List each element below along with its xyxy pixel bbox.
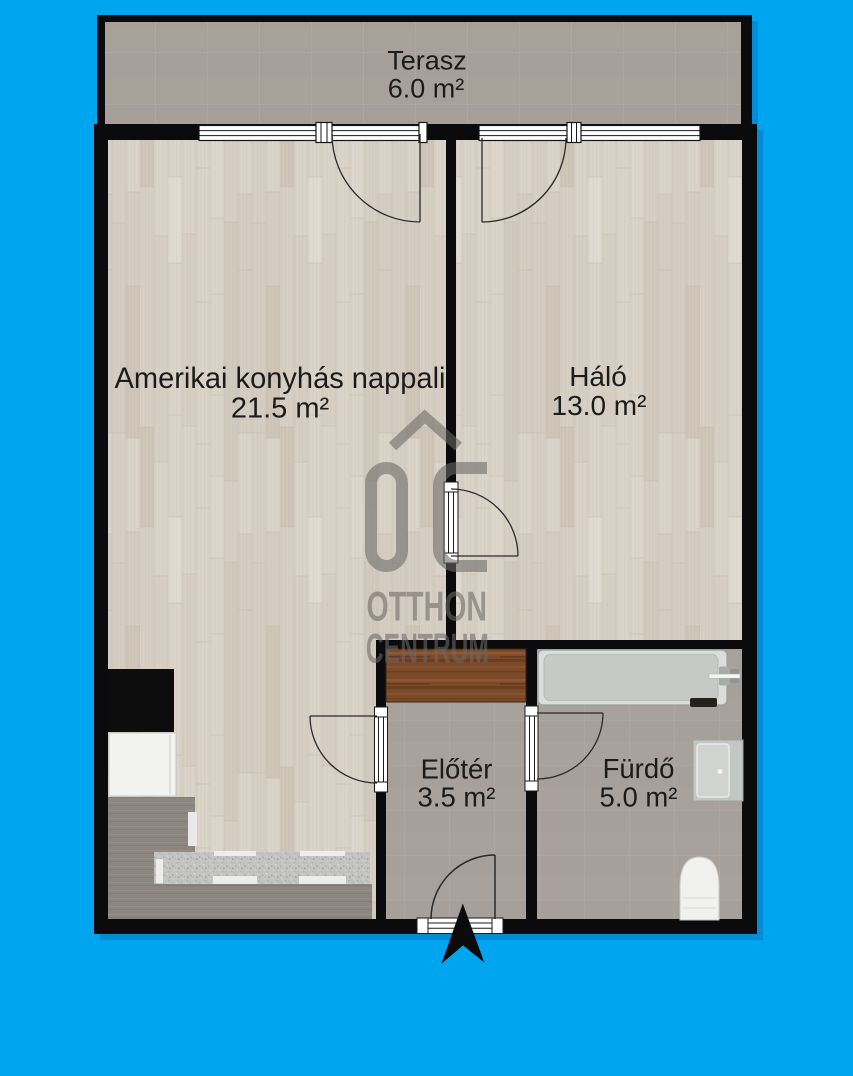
svg-text:13.0 m²: 13.0 m² (552, 390, 647, 421)
svg-text:Fürdő: Fürdő (603, 753, 675, 784)
svg-text:Amerikai konyhás nappali: Amerikai konyhás nappali (115, 362, 446, 395)
svg-text:3.5 m²: 3.5 m² (418, 782, 496, 813)
svg-text:Előtér: Előtér (421, 754, 493, 785)
svg-text:Terasz: Terasz (387, 46, 467, 76)
svg-text:CENTRUM: CENTRUM (366, 625, 489, 672)
svg-text:21.5 m²: 21.5 m² (231, 393, 330, 425)
svg-text:6.0 m²: 6.0 m² (388, 74, 465, 104)
svg-text:OTTHON: OTTHON (367, 582, 488, 629)
svg-text:Háló: Háló (569, 361, 627, 392)
svg-text:5.0 m²: 5.0 m² (600, 782, 678, 813)
